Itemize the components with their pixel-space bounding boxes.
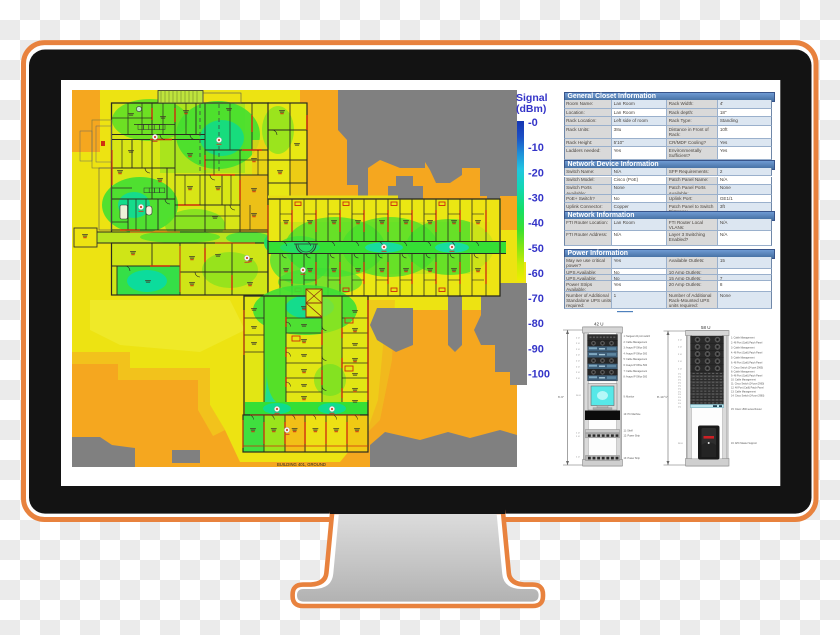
svg-text:-100: -100	[528, 369, 550, 381]
svg-text:15: Cisco x500 series Router: 15: Cisco x500 series Router	[731, 408, 762, 411]
svg-text:-20: -20	[528, 167, 544, 179]
svg-text:12: Power Strip: 12: Power Strip	[624, 435, 641, 438]
svg-text:1 U: 1 U	[576, 436, 580, 438]
svg-text:11: Shelf: 11: Shelf	[624, 430, 634, 433]
svg-text:BUILDING 401, GROUND: BUILDING 401, GROUND	[277, 462, 326, 467]
svg-text:-40: -40	[528, 218, 544, 230]
svg-text:-30: -30	[528, 192, 544, 204]
svg-text:1 U: 1 U	[678, 403, 682, 405]
svg-text:1 U: 1 U	[576, 457, 580, 459]
svg-text:-90: -90	[528, 343, 544, 355]
svg-text:-50: -50	[528, 243, 544, 255]
svg-text:1 U: 1 U	[678, 400, 682, 402]
svg-text:(dBm): (dBm)	[516, 103, 546, 115]
svg-text:-10: -10	[528, 142, 544, 154]
svg-text:-60: -60	[528, 268, 544, 280]
svg-text:-80: -80	[528, 318, 544, 330]
svg-text:1 U: 1 U	[576, 433, 580, 435]
svg-text:16: APC Master Support: 16: APC Master Support	[731, 442, 757, 445]
svg-text:-70: -70	[528, 293, 544, 305]
svg-text:10: PC Machine: 10: PC Machine	[624, 413, 642, 416]
svg-text:1 U: 1 U	[678, 406, 682, 408]
svg-text:28 U: 28 U	[678, 443, 683, 445]
svg-text:-0: -0	[528, 117, 538, 129]
svg-text:13: Power Strip: 13: Power Strip	[624, 457, 641, 460]
